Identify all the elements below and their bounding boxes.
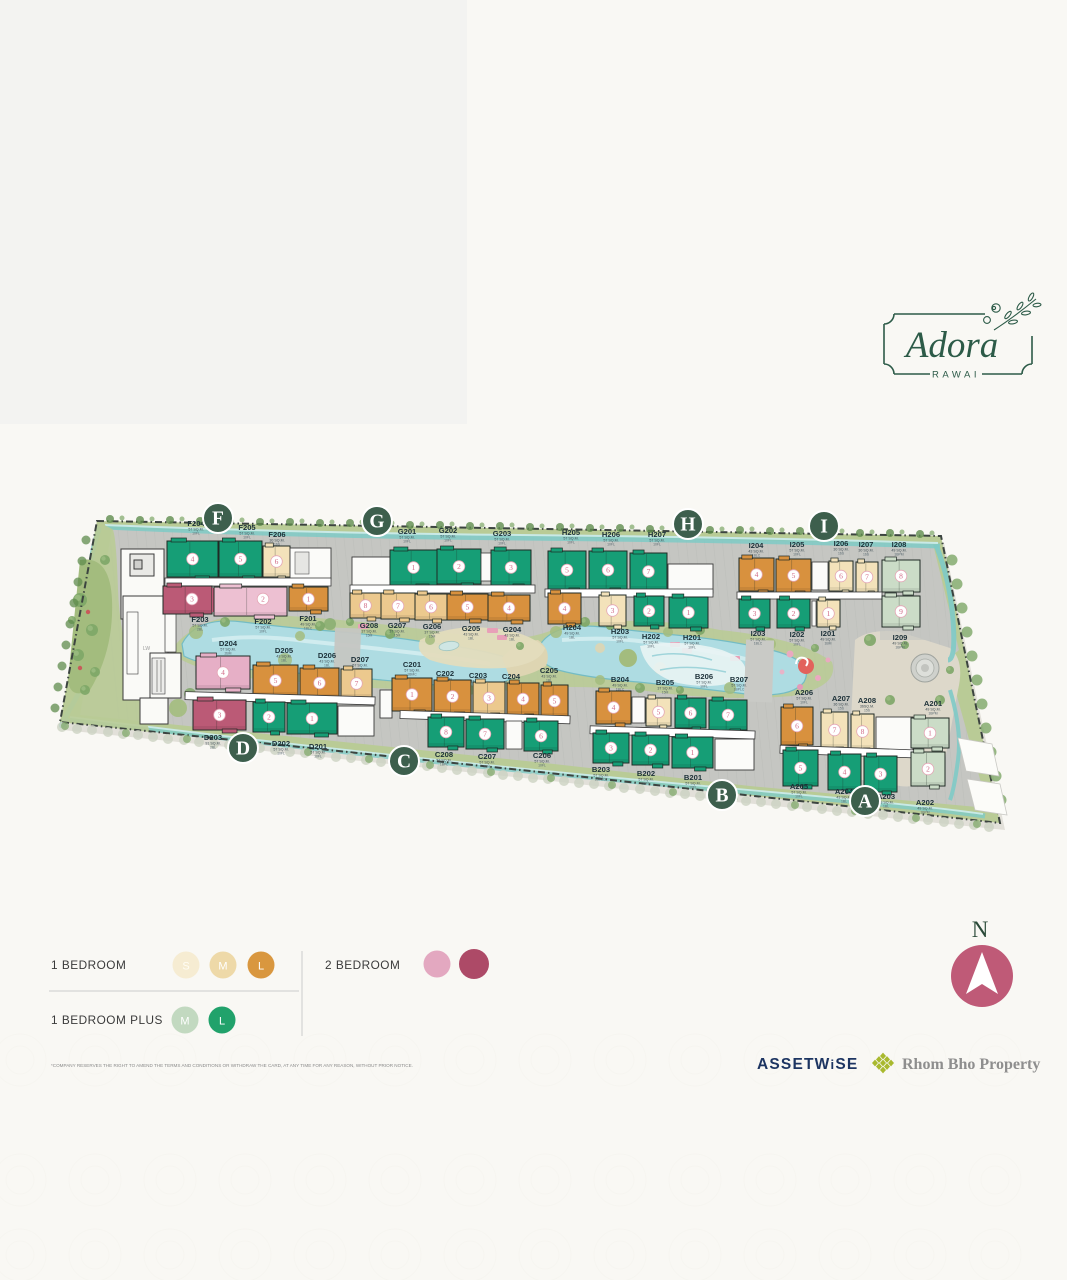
svg-text:7: 7 [483,730,487,739]
svg-text:N: N [972,917,989,942]
svg-text:M: M [180,1016,189,1028]
svg-text:2: 2 [792,609,796,618]
svg-text:1BLC: 1BLC [754,642,763,646]
svg-text:10FL: 10FL [616,640,624,644]
svg-text:1 BEDROOM PLUS: 1 BEDROOM PLUS [51,1013,163,1027]
svg-text:9: 9 [899,607,903,616]
svg-text:1BL: 1BL [841,800,847,804]
svg-text:6: 6 [689,709,693,718]
svg-text:L: L [219,1016,225,1028]
svg-text:7: 7 [396,602,400,611]
svg-text:10FL: 10FL [653,543,661,547]
svg-text:10FL: 10FL [793,643,801,647]
svg-text:10FL: 10FL [277,752,285,756]
svg-text:6: 6 [606,566,610,575]
svg-text:8: 8 [899,572,903,581]
svg-text:3: 3 [190,595,194,604]
svg-text:7: 7 [647,567,651,576]
svg-text:1BLC: 1BLC [304,627,313,631]
svg-text:4: 4 [755,570,759,579]
svg-text:15M: 15M [429,635,436,639]
svg-text:1BPM: 1BPM [928,712,937,716]
svg-text:7: 7 [726,711,730,720]
svg-text:I: I [820,517,828,538]
svg-text:2: 2 [267,713,271,722]
svg-text:7: 7 [865,573,869,582]
svg-text:1 BEDROOM: 1 BEDROOM [51,958,126,972]
svg-text:10FL: 10FL [607,543,615,547]
svg-text:10FL: 10FL [700,685,708,689]
svg-text:3: 3 [509,563,513,572]
svg-text:3: 3 [487,694,491,703]
svg-text:S: S [182,961,189,973]
svg-text:10FL: 10FL [647,645,655,649]
svg-text:4: 4 [612,703,616,712]
svg-text:5: 5 [792,571,796,580]
svg-text:A: A [858,792,872,813]
svg-text:1BPM: 1BPM [920,811,929,815]
svg-text:2: 2 [261,595,265,604]
svg-text:2 BEDROOM: 2 BEDROOM [325,958,400,972]
svg-text:M: M [218,961,227,973]
svg-text:6: 6 [275,557,279,566]
svg-text:2: 2 [457,562,461,571]
svg-text:1BLC: 1BLC [752,554,761,558]
svg-text:16S: 16S [863,553,870,557]
svg-text:1BM: 1BM [825,642,832,646]
svg-text:10FL: 10FL [403,540,411,544]
svg-text:1BPLC: 1BPLC [734,688,745,692]
svg-text:10FL: 10FL [793,553,801,557]
svg-text:G: G [369,512,384,533]
svg-text:2: 2 [649,746,653,755]
svg-text:2BM: 2BM [225,652,232,656]
svg-text:1: 1 [310,714,314,723]
svg-text:8: 8 [444,728,448,737]
svg-text:3: 3 [879,770,883,779]
svg-text:7: 7 [833,726,837,735]
svg-text:5: 5 [565,566,569,575]
svg-text:5: 5 [466,603,470,612]
svg-text:15M: 15M [394,634,401,638]
svg-text:10FL: 10FL [538,764,546,768]
svg-text:6: 6 [539,732,543,741]
svg-text:2BL: 2BL [197,628,203,632]
svg-text:Rhom Bho Property: Rhom Bho Property [902,1056,1040,1073]
svg-text:10FL: 10FL [192,532,200,536]
svg-text:10FL: 10FL [444,539,452,543]
svg-text:H: H [680,515,695,536]
svg-text:1: 1 [691,748,695,757]
svg-text:1: 1 [412,563,416,572]
svg-text:10FL: 10FL [567,541,575,545]
svg-text:D: D [236,739,250,760]
svg-text:16S: 16S [838,552,845,556]
svg-text:10FL: 10FL [642,782,650,786]
svg-text:1: 1 [410,690,414,699]
svg-text:L: L [258,961,264,973]
svg-text:RAWAI: RAWAI [932,370,980,381]
svg-text:6: 6 [839,572,843,581]
svg-text:LW: LW [143,646,150,652]
svg-text:5: 5 [553,697,557,706]
svg-text:B: B [715,786,728,807]
svg-text:6: 6 [795,722,799,731]
svg-text:2: 2 [451,692,455,701]
svg-text:1: 1 [307,595,311,604]
svg-text:1BL: 1BL [281,659,287,663]
svg-text:1: 1 [687,608,691,617]
svg-text:10FL: 10FL [259,630,267,634]
svg-text:8: 8 [364,601,368,610]
svg-text:1BPM: 1BPM [895,646,904,650]
svg-text:Adora: Adora [903,325,999,366]
svg-text:15M: 15M [662,691,669,695]
svg-text:2BL: 2BL [210,746,216,750]
svg-text:ASSETWiSE: ASSETWiSE [757,1056,858,1073]
svg-text:1BL: 1BL [883,805,889,809]
svg-text:5: 5 [239,555,243,564]
svg-text:10FL: 10FL [243,536,251,540]
svg-text:1BMC: 1BMC [407,673,417,677]
svg-text:4: 4 [191,555,195,564]
svg-text:10FL: 10FL [314,755,322,759]
svg-text:1BPM: 1BPM [894,553,903,557]
svg-text:4: 4 [521,695,525,704]
svg-text:3: 3 [609,744,613,753]
svg-text:4: 4 [221,668,225,677]
svg-text:15S: 15S [838,707,845,711]
svg-text:10FL: 10FL [795,795,803,799]
svg-text:1BL: 1BL [569,636,575,640]
svg-text:4: 4 [563,604,567,613]
svg-text:1: 1 [928,729,932,738]
svg-text:1: 1 [827,609,831,618]
svg-text:10FL: 10FL [689,786,697,790]
svg-text:1BL: 1BL [468,637,474,641]
svg-text:3: 3 [218,711,222,720]
svg-text:1BL: 1BL [509,638,515,642]
svg-text:10FL: 10FL [800,701,808,705]
svg-text:15M: 15M [366,634,373,638]
svg-text:1BPLC1: 1BPLC1 [595,778,608,782]
svg-text:10FL: 10FL [688,646,696,650]
svg-text:5: 5 [657,708,661,717]
svg-text:4: 4 [843,768,847,777]
svg-text:1BL: 1BL [324,664,330,668]
svg-text:*COMPANY RESERVES THE RIGHT TO: *COMPANY RESERVES THE RIGHT TO AMEND THE… [51,1063,413,1068]
svg-text:5: 5 [799,764,803,773]
svg-text:2: 2 [647,607,651,616]
svg-text:2: 2 [926,765,930,774]
svg-text:6: 6 [318,679,322,688]
svg-text:3: 3 [753,609,757,618]
svg-text:F: F [212,509,224,530]
svg-text:8: 8 [861,727,865,736]
svg-text:10FL: 10FL [498,542,506,546]
svg-text:10FL: 10FL [483,765,491,769]
svg-text:4: 4 [507,604,511,613]
svg-text:15S: 15S [864,709,871,713]
svg-text:5: 5 [274,676,278,685]
svg-text:6: 6 [429,603,433,612]
svg-text:7: 7 [355,679,359,688]
svg-text:3: 3 [611,606,615,615]
svg-text:1BPL: 1BPL [440,763,448,767]
svg-text:C: C [397,752,411,773]
